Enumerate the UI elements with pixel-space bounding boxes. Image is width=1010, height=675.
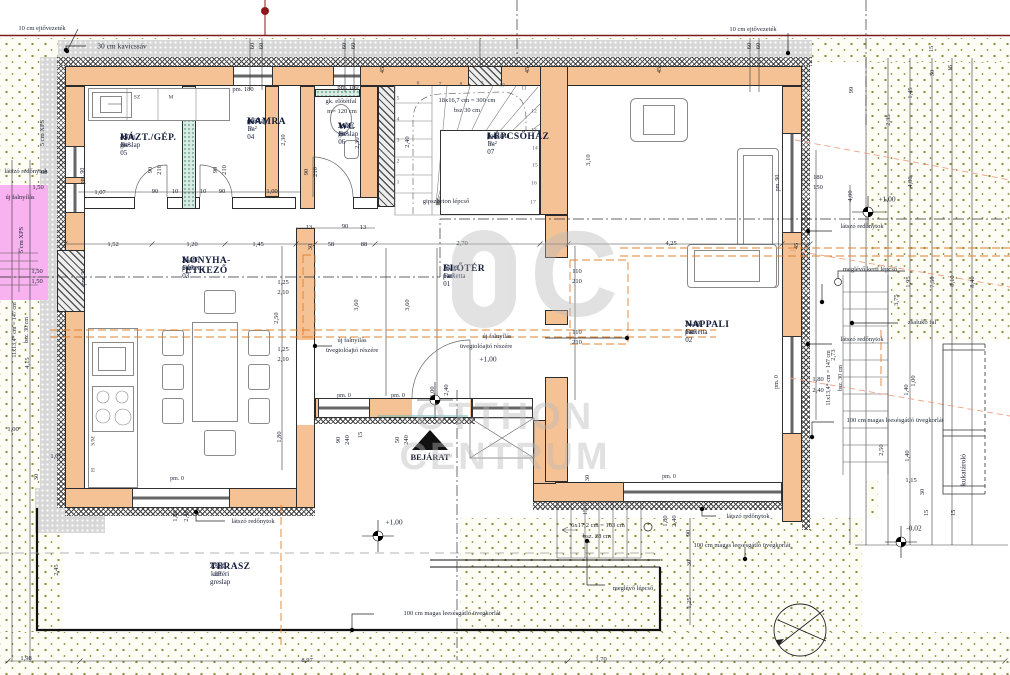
annotation-label: 10 cm ejtővezeték: [729, 27, 776, 34]
dimension-label: 2,10: [277, 290, 288, 297]
dimension-label: 8,40: [970, 276, 977, 287]
dimension-label: 60: [747, 43, 754, 50]
dimension-label: 60: [259, 43, 266, 50]
annotation-label: +1,00: [878, 195, 895, 203]
annotation-label: bsz 30 cm: [454, 108, 480, 115]
annotation-label: üvegtolóajtó részére: [326, 348, 379, 355]
dimension-label: 1,98: [20, 656, 31, 663]
dimension-label: 10: [200, 189, 207, 196]
dimension-label: 15: [929, 46, 936, 53]
room-area: 2,68 m²: [338, 122, 350, 138]
dimension-label: 1,50: [31, 269, 42, 276]
annotation-label: 100 cm magas leesésgátló üvegkorlát: [846, 418, 943, 425]
annotation-label: meglévő kerti lépcső: [843, 267, 897, 274]
dimension-label: 1,25: [687, 597, 694, 608]
dimension-label: 8,97: [301, 658, 312, 665]
utility-diagonals: [790, 140, 1010, 416]
dimension-label: 2,50: [274, 312, 281, 323]
annotation-label: látszó redőnytok: [840, 224, 883, 231]
dimension-label: 1,80: [812, 377, 823, 384]
dimension-label: 1,50: [32, 185, 43, 192]
dimension-label: 240: [404, 435, 411, 445]
annotation-label: gk. előtétfal: [325, 99, 356, 106]
annotation-label: pm. 0: [662, 474, 676, 480]
dimension-label: 58: [328, 242, 335, 249]
dimension-label: 2,10: [277, 357, 288, 364]
level-markers: [362, 196, 917, 558]
dimension-label: 30: [34, 474, 41, 481]
dimension-label: 60: [250, 43, 257, 50]
dimension-label: 60: [342, 43, 349, 50]
dimension-label: 150: [813, 185, 823, 192]
dimension-label: 1,15: [905, 478, 916, 485]
annotation-label: BEJÁRAT: [410, 453, 449, 462]
dimension-label: 1,52: [107, 242, 118, 249]
dimension-label: 1,25: [277, 347, 288, 354]
annotation-label: pm. 180: [232, 87, 253, 94]
dimension-label: 1,45: [908, 87, 915, 98]
dimension-label: 13: [360, 225, 367, 232]
dimension-label: 1,00: [430, 386, 437, 397]
dimension-label: 110: [572, 269, 582, 276]
compass-icon: [774, 604, 826, 656]
dimension-label: 10: [172, 189, 179, 196]
annotation-label: bsz. 28 cm: [583, 534, 611, 541]
dimension-label: 1,40: [904, 384, 911, 395]
dimension-label: 2,45: [54, 564, 61, 575]
stair-number: 8: [460, 82, 463, 88]
annotation-label: új falnyílás: [482, 334, 511, 341]
dimension-label: 15: [583, 509, 590, 516]
dimension-label: 50: [395, 437, 402, 444]
annotation-label: pm. 90: [81, 269, 87, 286]
annotation-label: 5 cm XPS: [19, 227, 26, 253]
room-area: 5,43 m²: [487, 132, 499, 148]
dimension-label: 1,80: [663, 515, 670, 526]
annotation-label: +1,00: [479, 355, 496, 363]
annotation-label: új falnyílás: [5, 195, 34, 202]
stair-number: 10: [499, 83, 505, 89]
annotation-label: 11x13,4* cm = 147 cm: [12, 302, 18, 357]
dimension-label: 1,40: [905, 450, 912, 461]
annotation-label: pm. 180: [337, 85, 358, 92]
dimension-label: 7,50: [930, 276, 937, 287]
dimension-label: 15: [358, 432, 365, 439]
dimension-label: 2,40: [812, 388, 823, 395]
dimension-label: 4,25: [665, 241, 676, 248]
dimension-label: 90: [148, 167, 155, 174]
dimension-label: 3,60: [405, 299, 412, 310]
dimension-label: 15: [948, 65, 955, 72]
dimension-label: 2,50: [879, 444, 886, 455]
dimension-label: 1,00: [266, 189, 277, 196]
dimension-label: 210: [572, 279, 582, 286]
annotation-label: 100 cm magas leesésgátló üvegkorlát: [693, 543, 790, 550]
dimension-label: 90: [686, 530, 693, 537]
stair-number: 17: [530, 200, 536, 206]
dimension-label: 15: [924, 510, 931, 517]
annotation-label: m= 120 cm: [327, 109, 357, 116]
dimension-label: 3,10: [586, 154, 593, 165]
dimension-label: 2,40: [444, 384, 451, 395]
annotation-label: kukatároló: [959, 454, 967, 486]
dimension-label: 1,00: [911, 375, 918, 386]
garden-stairs: [0, 248, 888, 558]
annotation-label: pm. 0: [774, 375, 780, 389]
dimension-label: 210: [222, 165, 229, 175]
dimension-label: 45: [794, 243, 801, 250]
annotation-label: látszó redőnytok: [840, 337, 883, 344]
annotation-label: látszó redőnytok: [231, 519, 274, 526]
dimension-label: 4,15: [25, 357, 32, 368]
dimension-label: 4,80: [908, 176, 915, 187]
annotation-label: 100 cm magas leesésgátló üvegkorlát: [403, 611, 500, 618]
stair-number: 2: [397, 159, 400, 165]
dimension-label: 240: [345, 435, 352, 445]
appliance-label: S/M: [91, 436, 97, 445]
dimension-label: 3,60: [354, 299, 361, 310]
appliance-label: H: [91, 468, 97, 472]
terrace-outline: [0, 508, 660, 630]
stair-number: 6: [417, 81, 420, 87]
dimension-label: 45: [525, 67, 532, 74]
dimension-label: 1,20: [186, 242, 197, 249]
dimension-label: 1,00: [7, 427, 18, 434]
floor-plan-drawing: A-F-05HÁZT./GÉP.cs.m. greslap4,76 m²A-F-…: [0, 0, 1010, 675]
room-area: 31,87 m²: [685, 320, 701, 336]
dimension-label: 45: [380, 67, 387, 74]
annotation-label: bsz. 30 cm: [24, 317, 30, 343]
dimension-label: 210: [313, 167, 320, 177]
entrance-arrow: [412, 430, 448, 450]
stair-number: 3: [397, 138, 400, 144]
dimension-label: 90: [304, 169, 311, 176]
annotation-label: 5 cm XPS: [40, 120, 47, 146]
dimension-label: 1,45: [252, 242, 263, 249]
annotation-label: 18x16,7 cm = 300 cm: [439, 98, 496, 105]
stair-number: 11: [521, 86, 526, 92]
entry-grate: [470, 418, 534, 458]
dimension-label: 1,07: [94, 190, 105, 197]
dimension-label: 88: [361, 242, 368, 249]
room-area: 4,60 m²: [247, 117, 259, 133]
annotation-label: 30 cm kavicssáv: [97, 42, 147, 50]
dimension-label: 90: [213, 167, 220, 174]
dimension-label: 1,80: [277, 431, 284, 442]
annotation-label: 6x17,2 cm = 103 cm: [571, 523, 625, 530]
dimension-label: 60: [756, 43, 763, 50]
dimension-label: 180: [813, 175, 823, 182]
dimension-label: 1,05: [50, 454, 61, 461]
annotation-label: bsz. 30 cm: [838, 365, 844, 391]
dimension-label: 30: [920, 489, 927, 496]
dimension-label: 2,40: [184, 510, 191, 521]
dimension-label: 2,70: [456, 241, 467, 248]
dimension-label: 90: [342, 224, 349, 231]
room-area: 15,99 m²: [443, 264, 459, 280]
dimension-label: 4,00: [848, 190, 855, 201]
dimension-label: 30: [687, 560, 694, 567]
stair-number: 15: [532, 163, 538, 169]
dimension-label: 60: [41, 170, 48, 177]
dimension-label: 2,30: [355, 137, 362, 148]
boundary-line-red: [0, 0, 1010, 36]
annotation-label: látszó redőnytok: [726, 514, 769, 521]
dimension-label: 1,80: [173, 510, 180, 521]
room-area: 4,76 m²: [120, 133, 132, 149]
dimension-label: 2,40: [672, 515, 679, 526]
dimension-label: 3,75: [894, 294, 901, 305]
dimension-label: 2,73: [831, 349, 838, 360]
dimension-label: 1,25: [277, 280, 288, 287]
dimension-label: 30: [585, 475, 592, 482]
dimension-label: 1,95: [906, 276, 913, 287]
annotation-label: pm. 0: [391, 393, 405, 399]
dimension-label: 90: [152, 189, 159, 196]
dimension-label: 13: [306, 225, 313, 232]
stair-number: 16: [531, 181, 537, 187]
annotation-label: +1,00: [385, 518, 402, 526]
dimension-label: 8,10: [950, 275, 957, 286]
annotation-label: meglévő lépcső: [613, 586, 654, 593]
dimension-label: 90: [219, 189, 226, 196]
stair-number: 12: [531, 109, 537, 115]
dimension-label: 90: [336, 437, 343, 444]
dimension-label: 210: [157, 165, 164, 175]
dimension-label: 15: [951, 510, 958, 517]
dimension-label: 60: [351, 43, 358, 50]
annotation-label: gipszbeton lépcső: [423, 199, 469, 206]
stair-number: 1: [397, 180, 400, 186]
stair-number: 7: [439, 82, 442, 88]
dimension-label: 2,40: [405, 136, 412, 147]
dimension-label: 110: [572, 330, 582, 337]
dimension-label: 45: [657, 67, 664, 74]
annotation-label: zsalukő fal: [908, 320, 936, 327]
dimension-label: 30: [930, 70, 937, 77]
stair-number: 13: [531, 128, 537, 134]
dimension-label: 99: [849, 87, 856, 94]
stair-number: 9: [481, 81, 484, 87]
annotation-label: pm. 90: [80, 168, 86, 185]
dimension-label: 1,50: [31, 279, 42, 286]
stair-number: 5: [397, 96, 400, 102]
stair-number: 14: [532, 146, 538, 152]
room-area: 27,80 m²: [210, 562, 226, 578]
annotation-label: pm. 0: [170, 476, 184, 482]
annotation-label: új falnyílás: [337, 338, 366, 345]
annotation-label: pm. 0: [337, 393, 351, 399]
annotation-label: üvegtolóajtó részére: [460, 344, 513, 351]
dimension-label: 210: [572, 340, 582, 347]
room-area: 21,27 m²: [182, 256, 198, 272]
appliance-label: SZ: [134, 95, 140, 101]
annotation-label: -0,02: [906, 524, 922, 532]
dimension-label: 1,70: [595, 657, 606, 664]
dimension-label: 30: [308, 244, 315, 251]
stair-number: 4: [397, 117, 400, 123]
appliance-label: M: [169, 95, 174, 101]
annotation-label: 10 cm ejtővezeték: [18, 26, 65, 33]
dimension-label: 2,30: [281, 134, 288, 145]
dimension-label: 2,35: [886, 114, 893, 125]
annotation-label: pm. 90: [775, 175, 781, 192]
